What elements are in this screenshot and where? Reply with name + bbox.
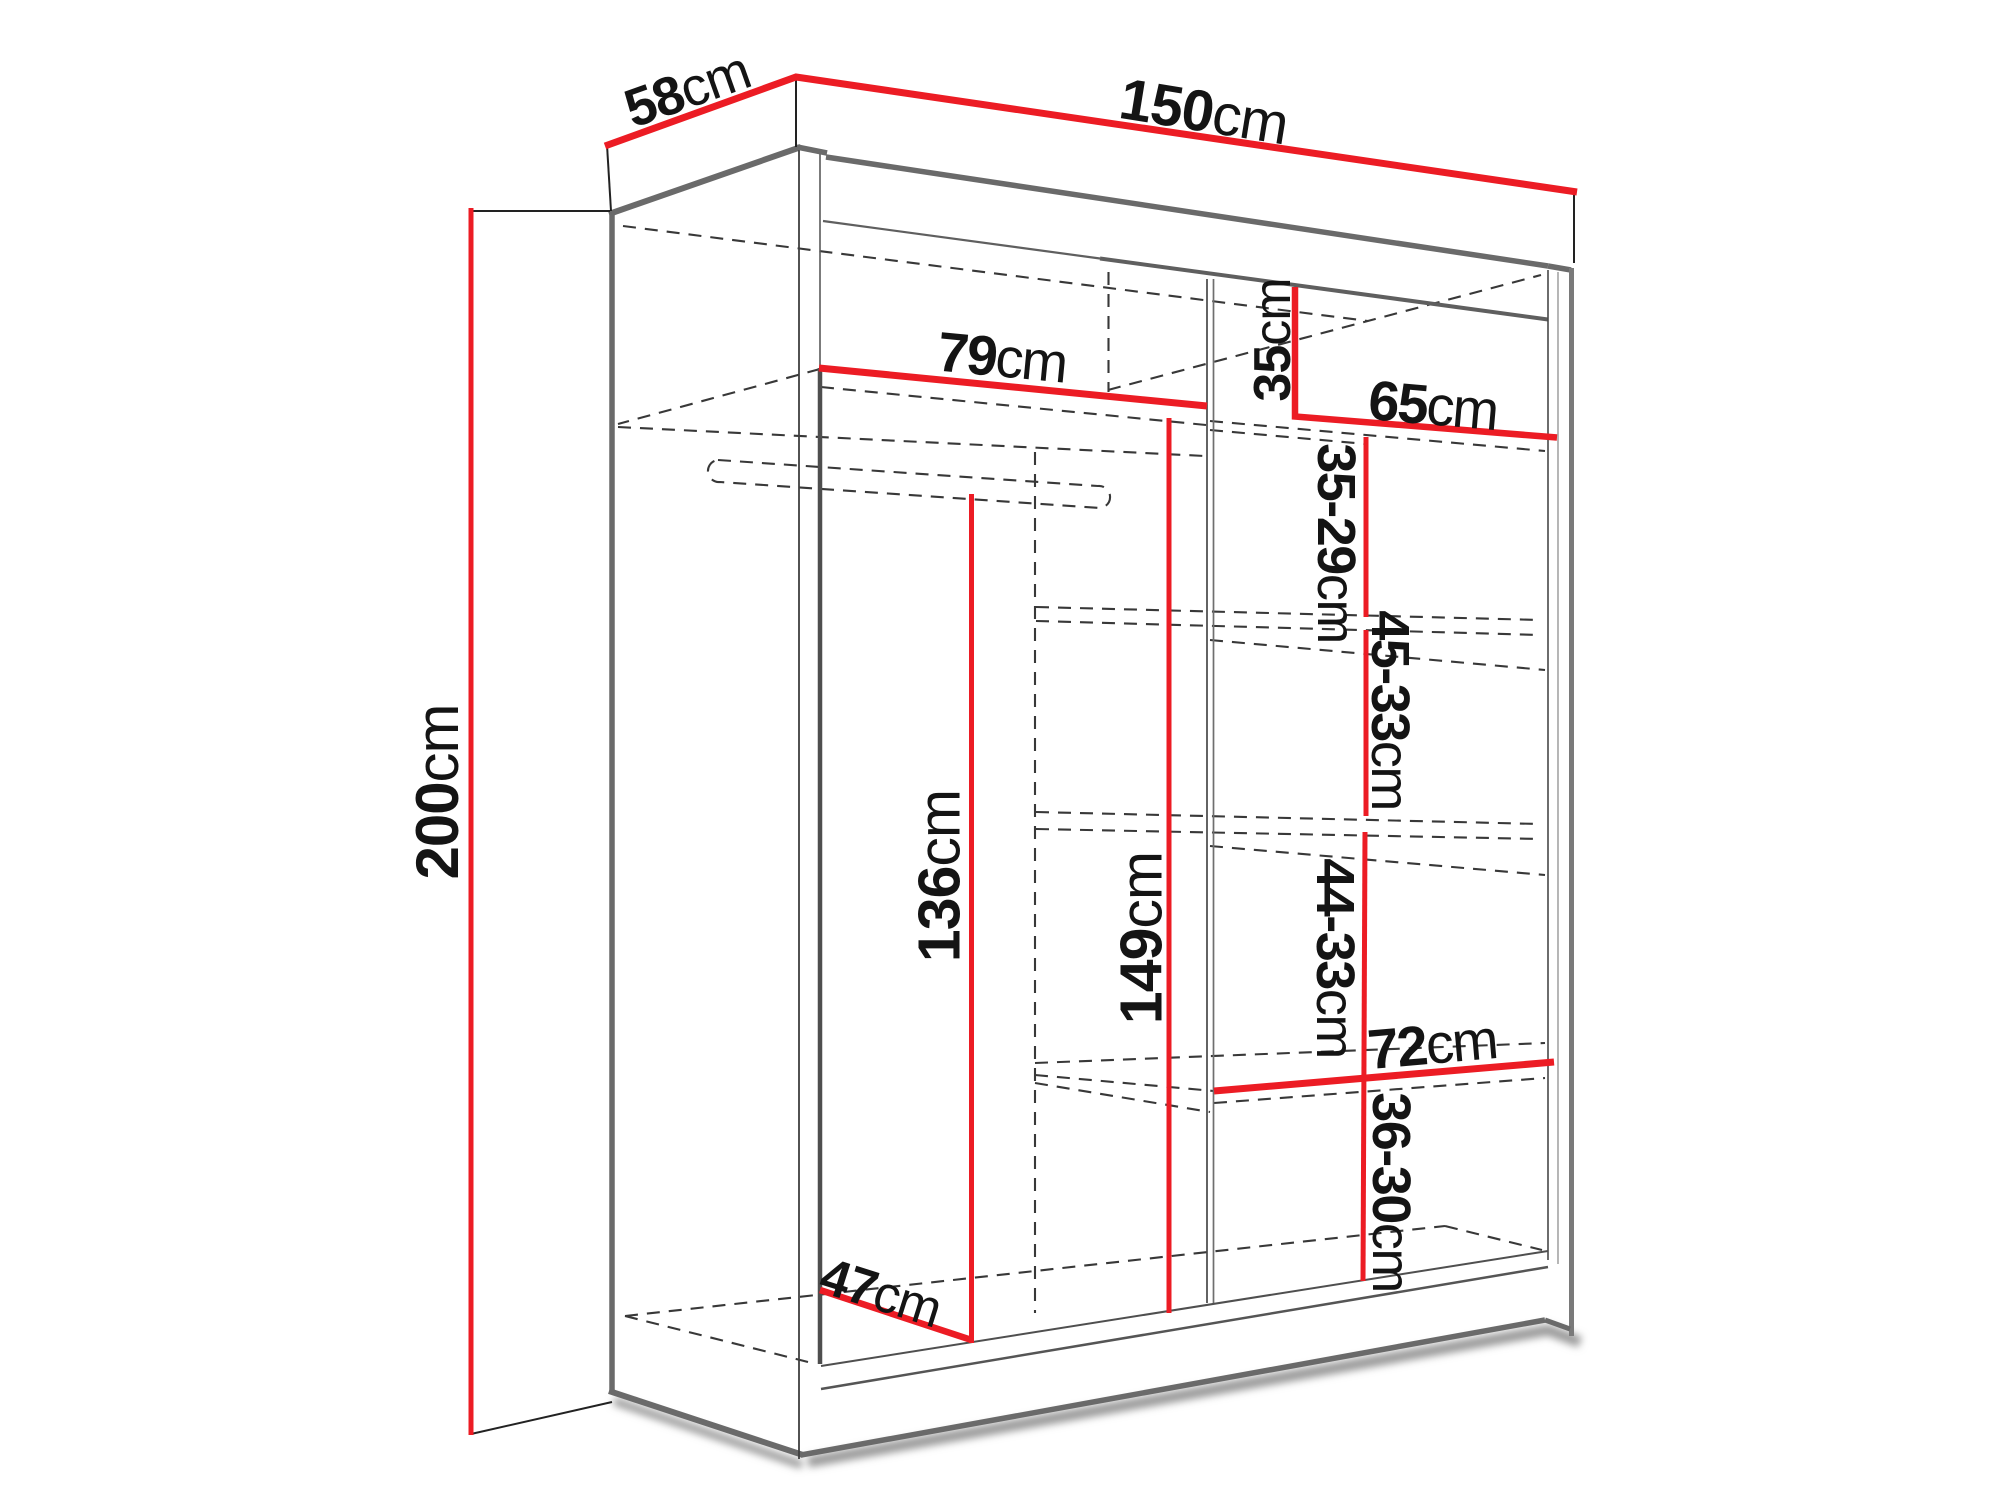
svg-text:36-30cm: 36-30cm xyxy=(1361,1092,1421,1292)
svg-text:35-29cm: 35-29cm xyxy=(1306,443,1366,643)
svg-text:136cm: 136cm xyxy=(907,790,973,962)
svg-text:72cm: 72cm xyxy=(1365,1007,1499,1081)
svg-text:200cm: 200cm xyxy=(404,704,471,879)
svg-text:45-33cm: 45-33cm xyxy=(1360,610,1420,810)
svg-text:65cm: 65cm xyxy=(1366,368,1500,442)
svg-text:44-33cm: 44-33cm xyxy=(1305,858,1365,1058)
svg-text:35cm: 35cm xyxy=(1244,278,1302,401)
svg-text:149cm: 149cm xyxy=(1109,852,1175,1024)
svg-text:79cm: 79cm xyxy=(935,320,1069,395)
